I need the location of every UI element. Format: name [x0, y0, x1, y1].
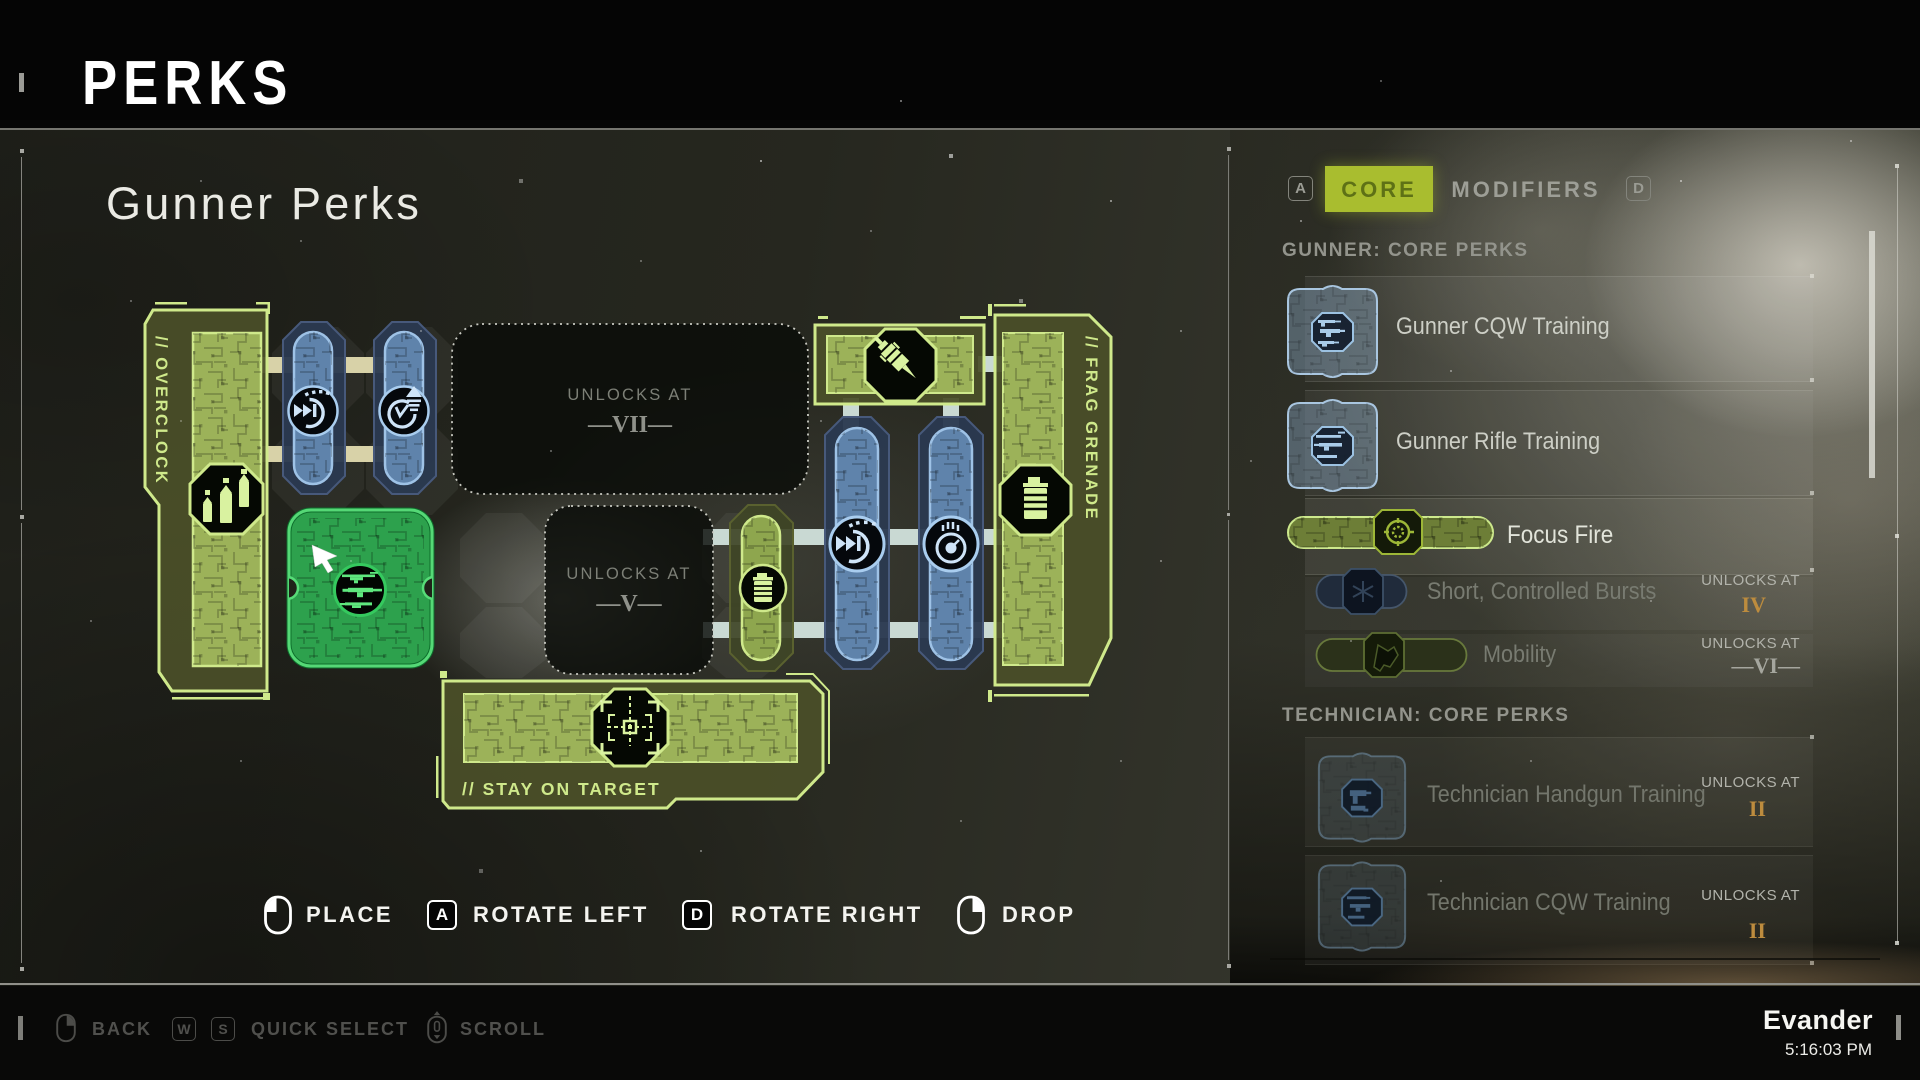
svg-text:—VII—: —VII—: [587, 412, 673, 438]
svg-text:UNLOCKS AT: UNLOCKS AT: [566, 565, 691, 583]
svg-text:// STAY ON TARGET: // STAY ON TARGET: [462, 779, 661, 799]
svg-text:// FRAG GRENADE: // FRAG GRENADE: [1082, 336, 1100, 521]
svg-text:// OVERCLOCK: // OVERCLOCK: [152, 336, 170, 485]
svg-text:—V—: —V—: [595, 591, 662, 617]
svg-text:UNLOCKS AT: UNLOCKS AT: [567, 386, 692, 404]
